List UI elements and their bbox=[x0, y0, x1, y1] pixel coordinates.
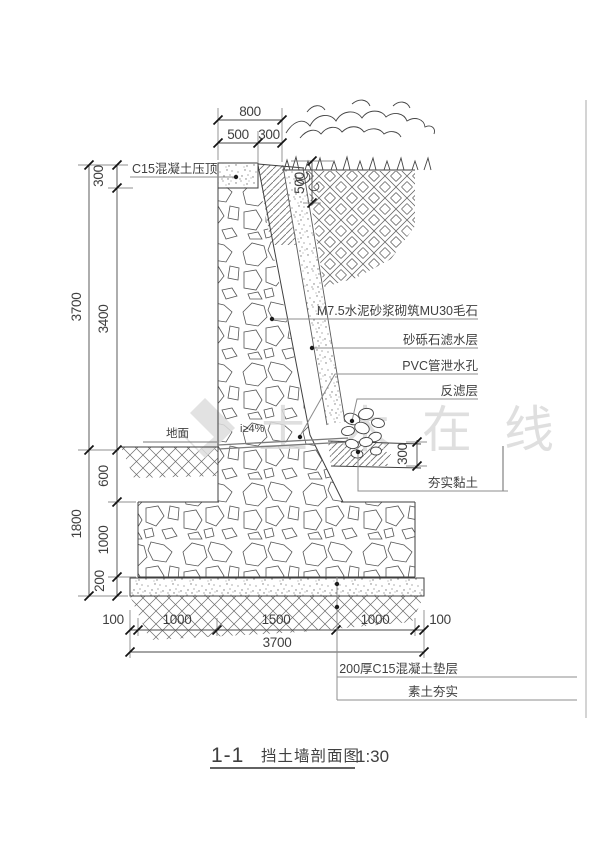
title-name: 挡土墙剖面图 bbox=[261, 747, 360, 765]
callout-inverted-filter: 反滤层 bbox=[440, 384, 478, 398]
dim-top-total-text: 800 bbox=[239, 104, 261, 119]
shrub-scribble bbox=[300, 127, 401, 138]
leader-dot bbox=[350, 419, 354, 423]
leader-dot bbox=[234, 175, 238, 179]
callout-pvc-weep: PVC管泄水孔 bbox=[402, 358, 478, 373]
footing-masonry bbox=[138, 502, 415, 577]
retaining-wall-section-svg: 土木在线 bbox=[0, 0, 610, 861]
cobble bbox=[371, 447, 382, 455]
leader-dot bbox=[335, 605, 339, 609]
dim-bottom-total-text: 3700 bbox=[263, 635, 292, 650]
grass-tufts bbox=[284, 157, 431, 170]
dim-clay-thickness-text: 300 bbox=[395, 443, 410, 465]
ground-label: 地面 bbox=[166, 427, 189, 440]
leader-dot bbox=[298, 435, 302, 439]
leader-dot bbox=[335, 582, 339, 586]
callout-concrete-pad: 200厚C15混凝土垫层 bbox=[339, 661, 458, 676]
dim-planting-depth-text: 500 bbox=[292, 172, 307, 194]
dim-margin-left-text: 100 bbox=[102, 612, 124, 627]
dim-drain-width-text: 300 bbox=[258, 127, 280, 142]
dim-cap-width-text: 500 bbox=[227, 127, 249, 142]
drawing-sheet: 土木在线 bbox=[0, 0, 610, 861]
concrete-cap bbox=[218, 163, 258, 188]
dim-seg2-text: 1500 bbox=[262, 612, 291, 627]
dim-wall-above-ground-text: 3700 bbox=[69, 293, 84, 322]
title-section-ref: 1-1 bbox=[211, 744, 244, 767]
callout-cap: C15混凝土压顶 bbox=[132, 161, 218, 176]
dim-seg3-text: 1000 bbox=[361, 612, 390, 627]
dim-cap-height-text: 300 bbox=[91, 165, 106, 187]
concrete-pad bbox=[130, 578, 424, 596]
callout-masonry: M7.5水泥砂浆砌筑MU30毛石 bbox=[317, 303, 478, 318]
drawing-title: 1-1 挡土墙剖面图 1:30 bbox=[210, 744, 389, 768]
title-scale: 1:30 bbox=[356, 747, 389, 766]
callout-compacted-subsoil: 素土夯实 bbox=[408, 684, 458, 699]
dim-below-ground-total-text: 1800 bbox=[69, 510, 84, 539]
slope-label: i≥4% bbox=[240, 423, 265, 435]
leader-dot bbox=[356, 450, 360, 454]
shrub-scribble bbox=[286, 111, 434, 134]
dim-pad-thickness-text: 200 bbox=[92, 570, 107, 592]
dim-seg1-text: 1000 bbox=[163, 612, 192, 627]
dim-stem-height-text: 3400 bbox=[96, 305, 111, 334]
shrub-scribble bbox=[307, 100, 410, 112]
callout-gravel-filter: 砂砾石滤水层 bbox=[403, 333, 478, 347]
dim-footing-height-text: 1000 bbox=[96, 526, 111, 555]
dim-embed-depth-text: 600 bbox=[96, 465, 111, 487]
dim-margin-right-text: 100 bbox=[429, 612, 451, 627]
callout-compacted-clay: 夯实黏土 bbox=[428, 475, 478, 490]
leader-dot bbox=[310, 346, 314, 350]
backfill-soil bbox=[306, 171, 415, 287]
leader-dot bbox=[270, 317, 274, 321]
watermark-text: 土木在线 bbox=[258, 402, 586, 458]
